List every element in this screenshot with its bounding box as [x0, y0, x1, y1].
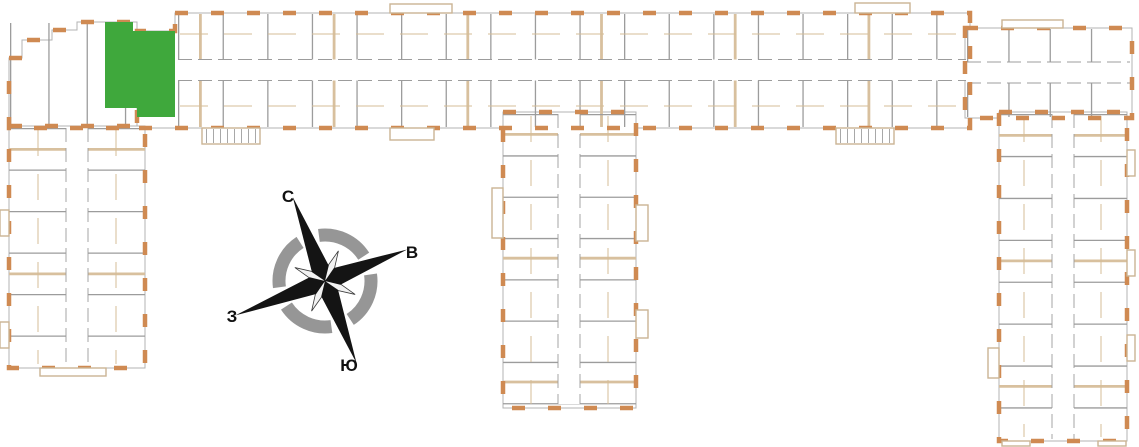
- compass-needles: [203, 165, 439, 397]
- balcony: [1127, 150, 1135, 176]
- compass-rose: С В З Ю: [203, 165, 439, 397]
- balcony: [0, 210, 9, 236]
- compass-north-label: С: [282, 187, 294, 206]
- balcony: [636, 310, 648, 338]
- balcony: [1127, 335, 1135, 361]
- balcony: [1002, 20, 1063, 28]
- selected-apartment-highlight[interactable]: [105, 22, 175, 117]
- balcony: [1002, 441, 1030, 446]
- balcony: [1098, 441, 1126, 446]
- balcony: [855, 3, 910, 13]
- compass-east-label: В: [406, 243, 418, 262]
- compass-south-label: Ю: [340, 356, 358, 375]
- balcony: [390, 4, 452, 13]
- entrance-stairs: [390, 128, 434, 140]
- balcony: [636, 205, 648, 241]
- balcony: [492, 188, 503, 238]
- floor-plan-canvas: С В З Ю: [0, 0, 1139, 447]
- entrance-stairs: [836, 128, 894, 144]
- entrance-stairs: [202, 128, 260, 144]
- balcony: [1127, 250, 1135, 276]
- balcony: [988, 348, 999, 378]
- balcony: [0, 322, 9, 348]
- entrance-stairs: [40, 368, 106, 376]
- floor-plan-page: С В З Ю: [0, 0, 1139, 447]
- compass-west-label: З: [227, 307, 238, 326]
